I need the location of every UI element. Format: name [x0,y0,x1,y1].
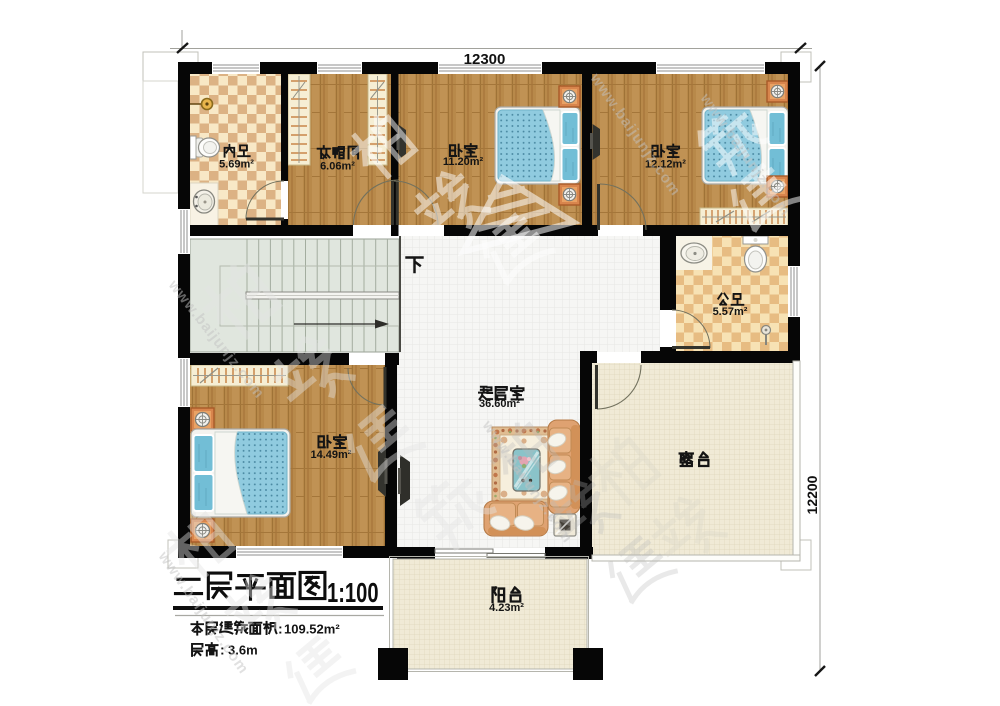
svg-text:11.20m²: 11.20m² [443,156,484,168]
svg-text:12300: 12300 [464,51,506,68]
svg-text:12200: 12200 [804,475,820,514]
svg-text:4.23m²: 4.23m² [489,602,524,614]
svg-text:109.52m²: 109.52m² [284,622,340,637]
svg-text:36.60m²: 36.60m² [479,398,520,410]
svg-text:14.49m²: 14.49m² [311,449,352,461]
svg-text:5.57m²: 5.57m² [713,306,748,318]
svg-text:1:100: 1:100 [327,578,379,609]
svg-text:6.06m²: 6.06m² [320,161,355,173]
svg-text:5.69m²: 5.69m² [219,159,254,171]
